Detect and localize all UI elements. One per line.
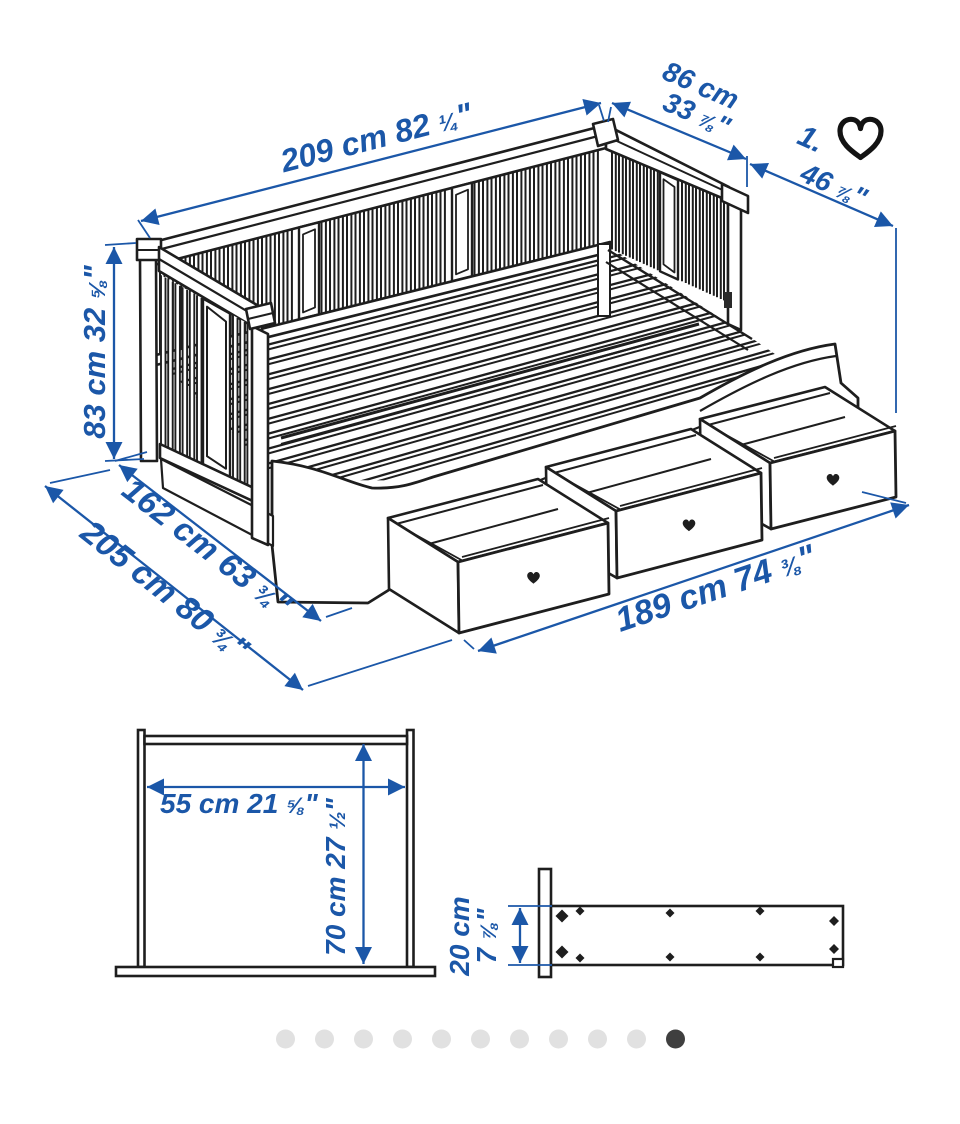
- svg-text:70 cm 27 ½": 70 cm 27 ½": [320, 797, 351, 955]
- svg-text:55 cm 21 ⅝": 55 cm 21 ⅝": [160, 788, 318, 819]
- svg-text:7 ⅞": 7 ⅞": [471, 908, 502, 964]
- svg-text:20 cm: 20 cm: [444, 896, 475, 976]
